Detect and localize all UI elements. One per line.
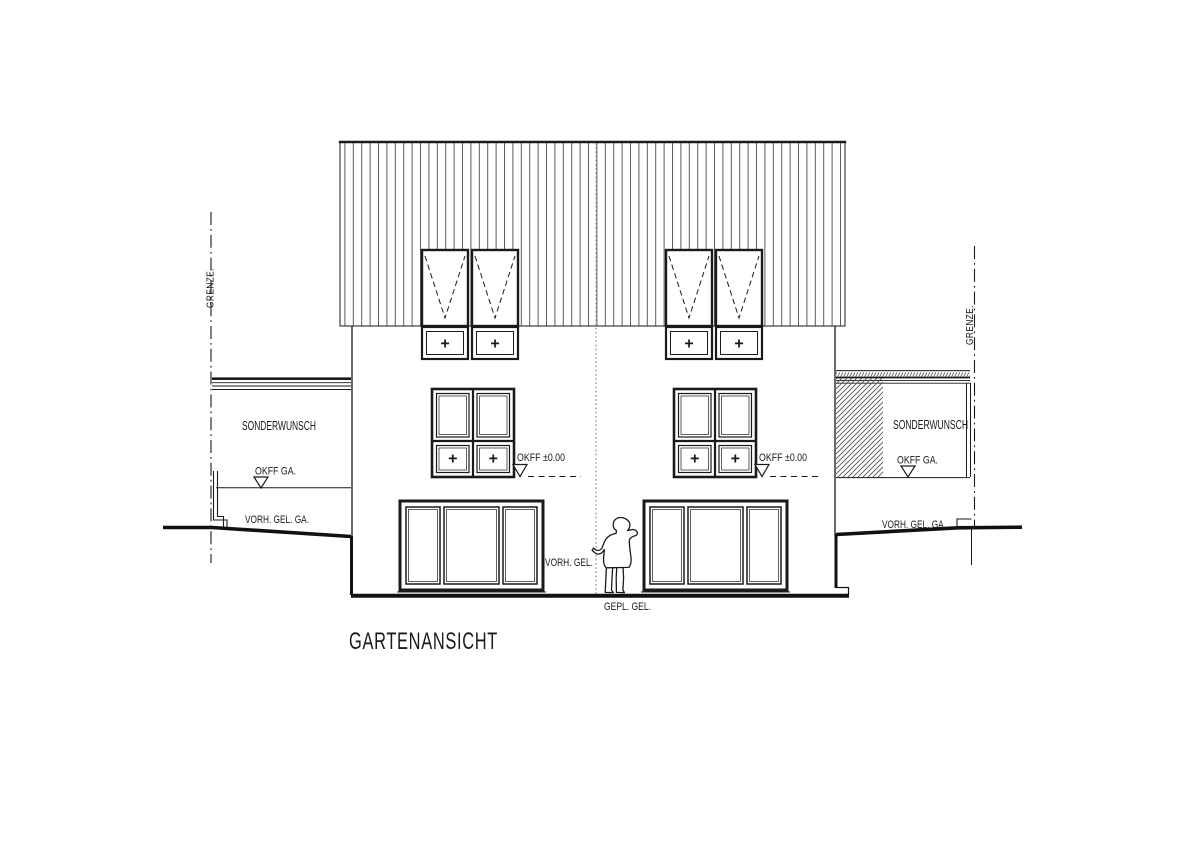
roof-window-left-1 — [422, 250, 468, 326]
garage-right-roof-hatch-strip — [836, 372, 970, 377]
eaves-window-left-2: + — [472, 327, 518, 359]
roof-standing-seam-hatch — [340, 142, 845, 326]
window-handle-plus-icon: + — [731, 451, 740, 468]
window-handle-plus-icon: + — [684, 336, 693, 353]
ground-window-right — [641, 501, 790, 592]
ground-window-left — [397, 501, 546, 592]
window-handle-plus-icon: + — [489, 451, 498, 468]
gepl-gel-label: GEPL. GEL. — [604, 601, 651, 613]
drawing-title: GARTENANSICHT — [349, 628, 498, 655]
grenze-left-label: GRENZE. — [205, 268, 217, 308]
okff-ga-right-label: OKFF GA. — [897, 455, 938, 467]
okff-ga-left-label: OKFF GA. — [255, 466, 296, 478]
eaves-window-right-1: + — [666, 327, 712, 359]
ground-windows — [397, 501, 790, 592]
level-triangle-icon — [254, 477, 268, 488]
roof-window-right-2 — [716, 250, 762, 326]
roof-window-left-2 — [472, 250, 518, 326]
eaves-windows: + + + + — [422, 327, 762, 359]
level-marker-okff-left: OKFF ±0.00 — [513, 452, 581, 477]
upper-windows: + + + + — [432, 389, 756, 477]
roof-window-right-1 — [666, 250, 712, 326]
window-handle-plus-icon: + — [690, 451, 699, 468]
vorh-gel-ga-left-label: VORH. GEL. GA. — [245, 514, 309, 526]
okff-main-left-label: OKFF ±0.00 — [517, 452, 565, 464]
eaves-window-right-2: + — [716, 327, 762, 359]
garage-left: SONDERWUNSCH OKFF GA. VORH. GEL. GA. — [212, 379, 351, 528]
garden-elevation-drawing: + + + + — [0, 0, 1200, 848]
window-handle-plus-icon: + — [440, 336, 449, 353]
window-handle-plus-icon: + — [734, 336, 743, 353]
elevation-sheet: + + + + — [0, 0, 1200, 848]
terrain-existing-left — [163, 528, 351, 537]
garage-left-wall-step — [214, 471, 228, 527]
person-body — [592, 518, 637, 568]
person-right-leg — [616, 566, 624, 593]
level-triangle-icon — [901, 466, 915, 477]
vorh-gel-ga-right-label: VORH. GEL. GA. — [882, 519, 946, 531]
upper-window-left: + + — [432, 389, 514, 477]
window-handle-plus-icon: + — [448, 451, 457, 468]
level-marker-okff-right: OKFF ±0.00 — [755, 452, 820, 477]
sonderwunsch-left-label: SONDERWUNSCH — [242, 419, 316, 433]
garage-right: SONDERWUNSCH OKFF GA. VORH. GEL. GA. — [836, 371, 972, 565]
garage-right-section-hatch — [836, 379, 883, 478]
window-handle-plus-icon: + — [490, 336, 499, 353]
roof — [339, 142, 846, 326]
vorh-gel-label: VORH. GEL. — [545, 557, 593, 569]
person-figure — [592, 518, 637, 593]
eaves-window-left-1: + — [422, 327, 468, 359]
person-left-leg — [605, 566, 613, 593]
grenze-right-label: GRENZE. — [964, 305, 976, 345]
upper-window-right: + + — [674, 389, 756, 477]
okff-main-right-label: OKFF ±0.00 — [759, 452, 807, 464]
sonderwunsch-right-label: SONDERWUNSCH — [893, 418, 968, 432]
